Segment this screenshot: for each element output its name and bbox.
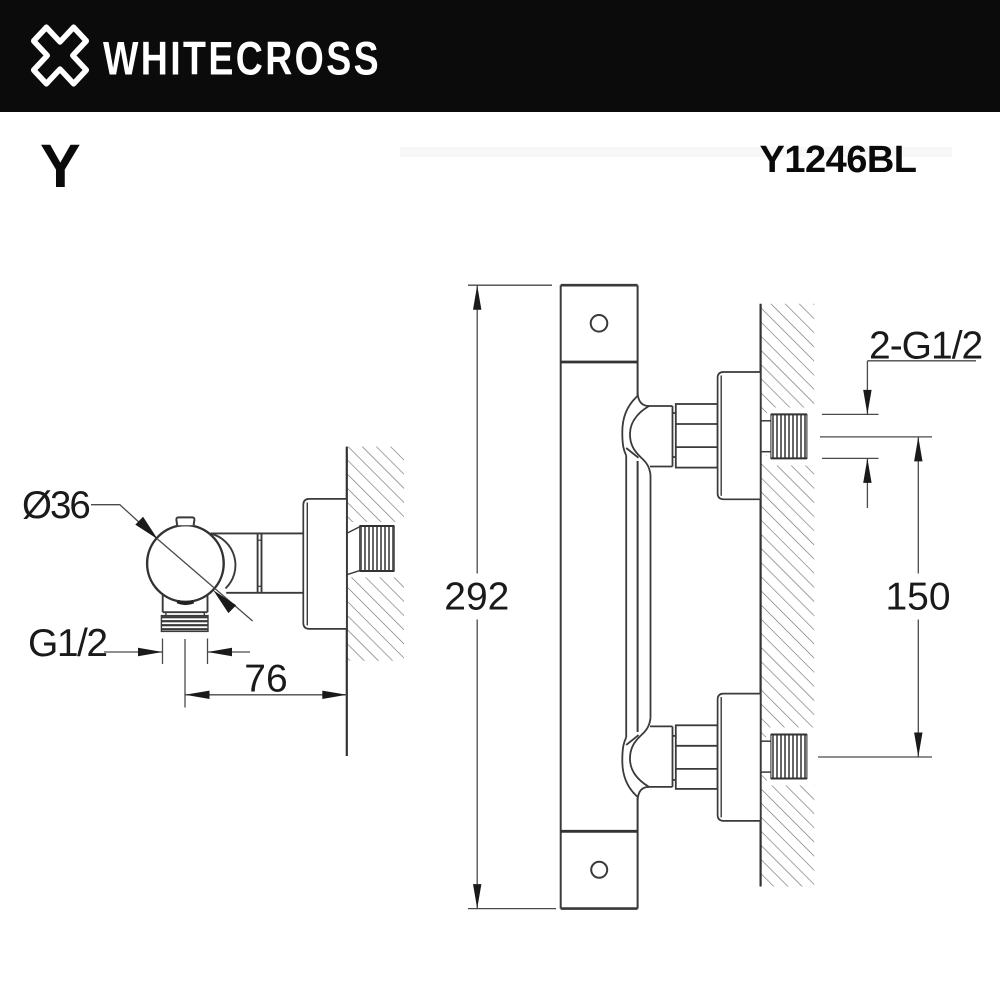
svg-text:292: 292	[444, 576, 509, 619]
svg-text:Y1246BL: Y1246BL	[759, 139, 916, 181]
svg-text:WHITECROSS: WHITECROSS	[103, 32, 381, 85]
svg-text:150: 150	[885, 576, 950, 619]
svg-text:Y: Y	[40, 132, 81, 200]
svg-text:76: 76	[244, 658, 287, 701]
svg-text:G1/2: G1/2	[28, 622, 107, 665]
svg-text:2-G1/2: 2-G1/2	[869, 325, 982, 368]
svg-text:Ø36: Ø36	[22, 484, 89, 527]
